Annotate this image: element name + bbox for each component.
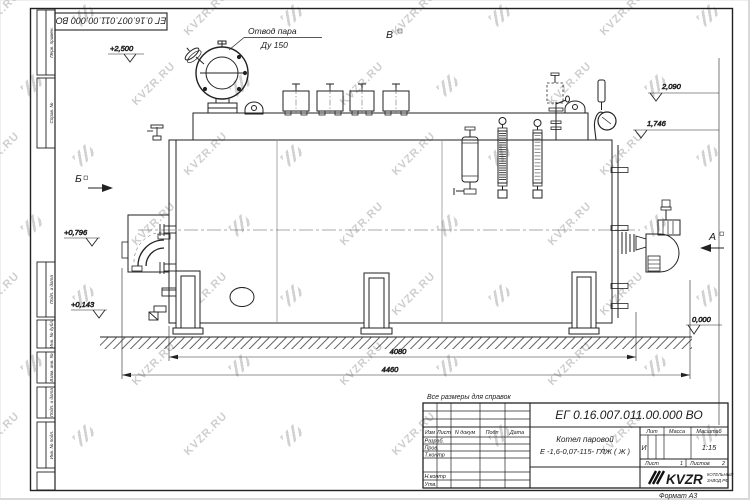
- sheet-label: Лист: [644, 461, 659, 467]
- format-label: Формат А3: [659, 493, 697, 500]
- manhole: [230, 288, 254, 307]
- col-podp: Подп: [486, 430, 499, 436]
- level-0143: +0,143: [71, 300, 95, 309]
- top-fittings: [283, 84, 409, 115]
- fan-motor-unit: [622, 200, 680, 272]
- level-2500: +2,500: [110, 44, 134, 53]
- level-0000: 0,000: [692, 315, 712, 324]
- dim-4460: 4460: [382, 365, 400, 374]
- row-nkontr: Н.контр: [425, 474, 446, 480]
- dimensions: 4080 4460 +2,500 +0,796 +0,143 2,090 1,7…: [64, 44, 722, 425]
- boiler-drawing: Перв. примен. Справ. № Подп. и дата Инв.…: [0, 0, 750, 500]
- brand-sub2: ЗАВОД РФ: [707, 478, 729, 483]
- view-b-left: Б: [75, 173, 82, 185]
- front-nozzles: [147, 125, 176, 320]
- row-prov: Пров.: [425, 446, 439, 452]
- steam-callout-dn: Ду 150: [260, 40, 288, 50]
- title-doc-number: ЕГ 0.16.007.011.00.000 ВО: [555, 408, 703, 422]
- col-data: Дата: [509, 430, 524, 436]
- row-utv: Утв.: [424, 482, 437, 488]
- product-name-1: Котел паровой: [556, 435, 614, 444]
- col-doc: N докум: [455, 430, 476, 436]
- lit-value: И: [641, 445, 647, 452]
- support-legs: [173, 271, 599, 334]
- boiler-body: [138, 113, 640, 334]
- reference-note: Все размеры для справок: [427, 393, 512, 401]
- view-b-top: В: [386, 29, 393, 41]
- product-name-2: Е -1,6-0,07-115- ГЛЖ ( Ж ): [540, 447, 631, 456]
- kvzr-logo: KVZR КОТЕЛЬНЫЙ ЗАВОД РФ: [649, 471, 733, 487]
- scale-value: 1:15: [702, 443, 717, 452]
- brand-text: KVZR: [666, 472, 703, 487]
- steam-outlet-valve: [180, 41, 263, 114]
- instruments: [454, 73, 616, 198]
- col-list: Лист: [436, 430, 451, 436]
- steam-callout-text: Отвод пара: [248, 26, 297, 36]
- dim-4080: 4080: [390, 347, 408, 356]
- sheets-label: Листов: [689, 461, 710, 467]
- brand-sub1: КОТЕЛЬНЫЙ: [707, 472, 733, 477]
- burner-unit: [122, 215, 170, 272]
- stamp-col-label: Подп. и дата: [49, 275, 54, 304]
- lit-label: Лит: [645, 429, 658, 435]
- stamp-col-label: Подп. и дата: [49, 388, 54, 417]
- doc-number-rotated: ЕГ 0.16.007.011.00.000 ВО: [56, 16, 167, 26]
- stamp-col-label: Инв. № дубл.: [49, 320, 54, 348]
- level-2090: 2,090: [661, 82, 682, 91]
- row-razrab: Разраб.: [425, 439, 445, 445]
- row-tkontr: Т.контр: [425, 453, 445, 459]
- mass-label: Масса: [669, 429, 685, 435]
- stamp-col-label: Перв. примен.: [49, 27, 54, 58]
- view-a-right: А: [708, 231, 716, 243]
- stamp-col-label: Взам. инв. №: [49, 353, 54, 381]
- title-block: ЕГ 0.16.007.011.00.000 ВО Изм Лист N док…: [423, 403, 733, 488]
- stamp-col-label: Справ. №: [49, 103, 54, 124]
- gost-frame: Перв. примен. Справ. № Подп. и дата Инв.…: [31, 9, 733, 500]
- sheets-value: 2: [721, 461, 725, 467]
- steam-callout: Отвод пара Ду 150: [229, 26, 322, 50]
- level-0796: +0,796: [64, 228, 88, 237]
- drawing-sheet: KVZR.RUKVZR.RUKVZR.RUKVZR.RUKVZR.RUKVZR.…: [0, 0, 750, 500]
- sheet-value: 1: [680, 461, 683, 467]
- stamp-col-label: Инв. № подл.: [49, 431, 54, 460]
- scale-label: Масштаб: [696, 429, 722, 435]
- col-izm: Изм: [425, 430, 435, 436]
- level-1746: 1,746: [647, 119, 667, 128]
